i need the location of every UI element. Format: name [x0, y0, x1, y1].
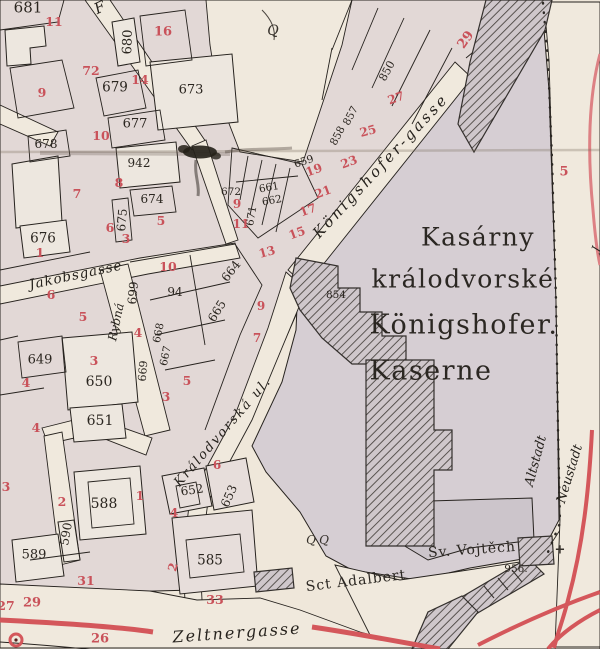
parcel-number: 652	[180, 482, 204, 497]
house-number: 1	[36, 247, 45, 260]
house-number: 2	[166, 561, 180, 572]
house-number: 13	[257, 244, 276, 260]
parcel-number: 669	[137, 360, 150, 382]
house-number: 33	[206, 594, 223, 607]
parcel-number: 585	[197, 554, 223, 568]
street-label: Altstadt	[523, 434, 549, 488]
house-number: 72	[82, 65, 99, 78]
house-number: 14	[131, 74, 148, 87]
house-number: 11	[233, 218, 250, 230]
parcel-number: 664	[219, 258, 243, 283]
parcel-number: 942	[128, 157, 151, 169]
house-number: 27	[386, 90, 406, 107]
house-number: 21	[313, 184, 333, 201]
house-number: 8	[115, 177, 124, 190]
house-number: 4	[134, 327, 143, 340]
house-number: 16	[154, 26, 172, 39]
parcel-number: 675	[115, 208, 129, 232]
parcel-number: 858	[329, 125, 348, 148]
parcel-number: 956.	[504, 564, 527, 575]
street-label: F	[92, 0, 108, 17]
house-number: 9	[233, 198, 241, 210]
parcel-number: 676	[30, 232, 56, 246]
map-canvas[interactable]: FJakobsgasseRybnáKönigshofer-gasseKrálod…	[0, 0, 600, 649]
street-label: Rybná	[106, 302, 126, 342]
house-number: 7	[253, 332, 261, 344]
house-number: 7	[73, 188, 82, 201]
place-label: Kaserne	[370, 358, 493, 385]
house-number: 5	[157, 215, 166, 228]
parcel-number: 850	[377, 59, 397, 83]
map-labels: FJakobsgasseRybnáKönigshofer-gasseKrálod…	[0, 0, 600, 649]
parcel-number: 672	[221, 187, 241, 198]
house-number: 11	[45, 16, 62, 29]
parcel-number: 673	[179, 84, 204, 97]
street-label: J	[590, 245, 600, 253]
house-number: 6	[213, 459, 221, 471]
house-number: 10	[92, 130, 109, 143]
house-number: 31	[77, 575, 94, 588]
house-number: 6	[106, 222, 115, 235]
house-number: 26	[91, 633, 109, 646]
parcel-number: 665	[206, 298, 228, 324]
parcel-number: 678	[35, 138, 58, 150]
house-number: 25	[358, 123, 377, 139]
house-number: 3	[162, 391, 171, 404]
house-number: 4	[32, 422, 41, 435]
house-number: 5	[559, 166, 568, 179]
house-number: 19	[304, 162, 324, 179]
house-number: 15	[287, 225, 307, 242]
house-number: 1	[136, 490, 145, 503]
place-label: Sct Adalbert	[305, 568, 407, 594]
parcel-number: 668	[152, 322, 166, 344]
house-number: 5	[79, 311, 88, 324]
parcel-number: 680	[121, 29, 135, 54]
street-label: Königshofer-gasse	[310, 91, 451, 241]
house-number: 2	[58, 496, 67, 509]
place-label: Kasárny	[421, 225, 535, 250]
map-symbol: +	[555, 544, 566, 557]
map-symbol: Q	[306, 534, 316, 546]
map-symbol: Q	[267, 24, 278, 38]
parcel-number: 857	[342, 105, 361, 128]
parcel-number: 589	[22, 549, 47, 562]
house-number: 4	[22, 377, 31, 390]
parcel-number: 662	[261, 194, 283, 208]
parcel-number: 677	[123, 118, 148, 131]
street-label: Neustadt	[555, 443, 585, 505]
parcel-number: 649	[28, 354, 53, 367]
parcel-number: 674	[141, 193, 164, 205]
house-number: 27	[0, 600, 15, 613]
parcel-number: 667	[159, 345, 173, 367]
parcel-number: 590	[58, 522, 74, 547]
house-number: 10	[159, 261, 176, 274]
house-number: 3	[122, 233, 131, 246]
parcel-number: 699	[126, 281, 140, 305]
house-number: 9	[38, 87, 47, 100]
street-label: Zeltnergasse	[172, 621, 302, 646]
house-number: 29	[455, 29, 476, 51]
street-label: Jakobsgasse	[28, 260, 124, 293]
parcel-number: 588	[91, 497, 118, 511]
parcel-number: 650	[86, 375, 113, 389]
parcel-number: 653	[219, 483, 239, 509]
parcel-number: 651	[87, 414, 114, 428]
parcel-number: 854	[326, 290, 346, 301]
place-label: Königshofer.	[369, 312, 558, 339]
house-number: 4	[170, 507, 179, 520]
parcel-number: 679	[102, 81, 128, 95]
house-number: 3	[2, 481, 11, 494]
place-label: Sv. Vojtěch	[428, 540, 517, 560]
parcel-number: 681	[14, 1, 43, 16]
house-number: 9	[257, 300, 265, 312]
house-number: 6	[47, 289, 56, 302]
house-number: 29	[23, 597, 41, 610]
house-number: 3	[90, 355, 99, 368]
parcel-number: 94	[167, 286, 182, 298]
house-number: 23	[339, 154, 359, 171]
street-label: Králodvorská ul.	[172, 375, 274, 490]
house-number: 17	[298, 202, 318, 219]
map-symbol: Q	[319, 534, 329, 546]
house-number: 5	[183, 375, 192, 388]
place-label: králodvorské	[372, 267, 555, 292]
